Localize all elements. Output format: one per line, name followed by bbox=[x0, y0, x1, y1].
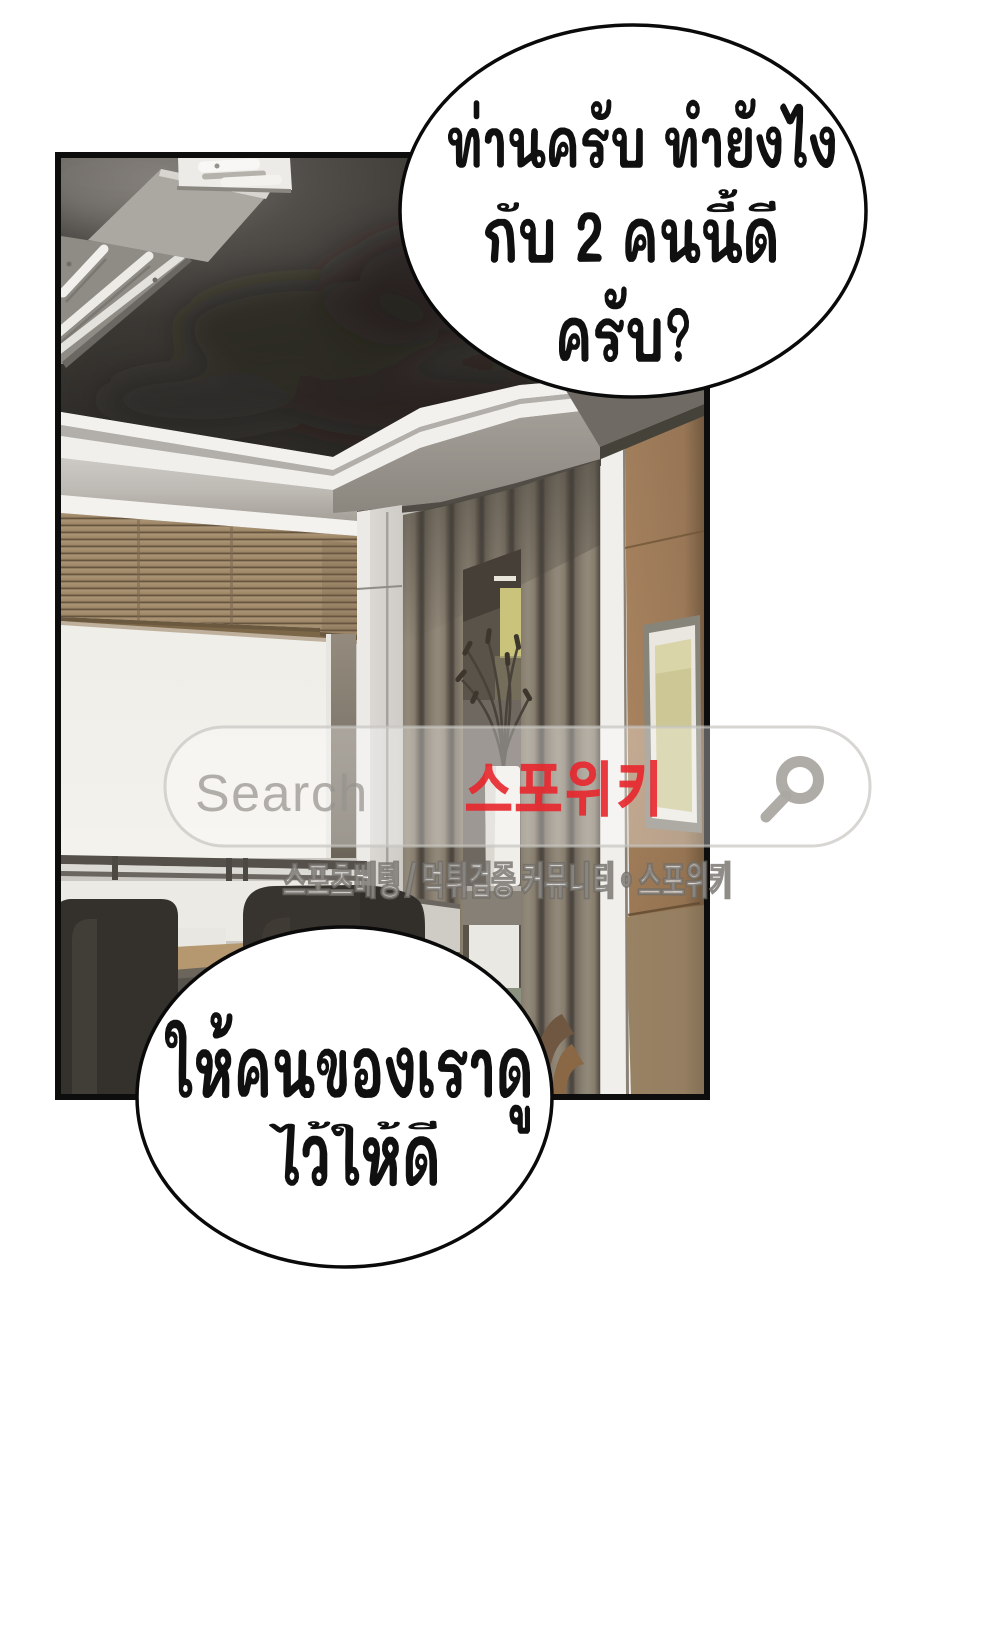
svg-text:Search: Search bbox=[195, 765, 369, 823]
